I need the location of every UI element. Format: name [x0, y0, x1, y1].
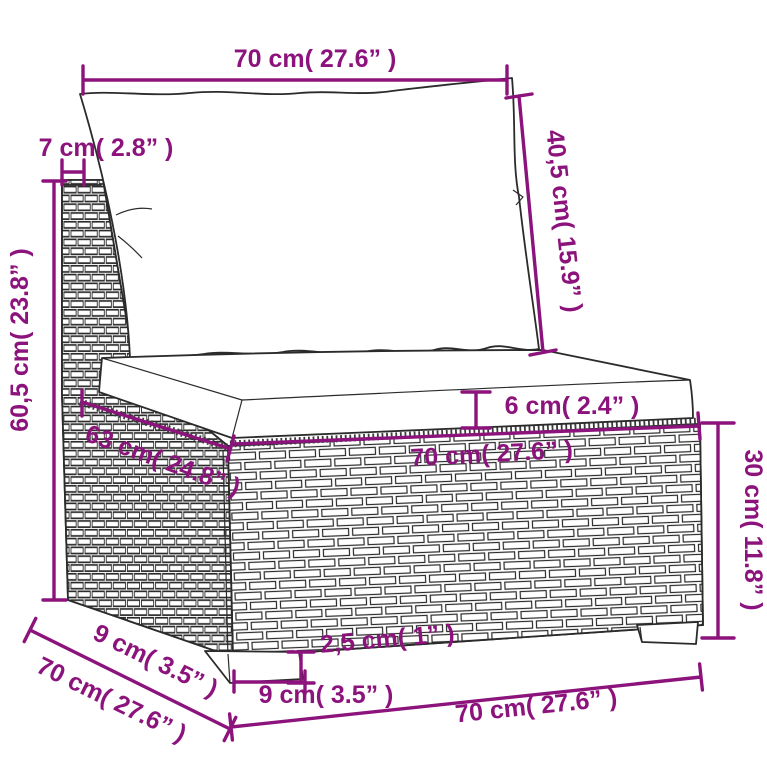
sofa-dimension-drawing: 70 cm( 27.6” ) 7 cm( 2.8” ) 40,5 cm( 15.… — [0, 0, 767, 767]
dim-back-total-height: 60,5 cm( 23.8” ) — [6, 181, 66, 600]
dim-base-height-line — [702, 423, 734, 638]
back-cushion — [80, 78, 539, 358]
dim-back-width-label: 70 cm( 27.6” ) — [234, 45, 397, 73]
dim-back-total-height-label: 60,5 cm( 23.8” ) — [6, 248, 34, 431]
dimension-diagram: 70 cm( 27.6” ) 7 cm( 2.8” ) 40,5 cm( 15.… — [0, 0, 767, 767]
dim-base-height-label: 30 cm( 11.8” ) — [739, 449, 767, 610]
dim-back-panel-thickness-label: 7 cm( 2.8” ) — [39, 134, 174, 162]
dim-foot-width-label: 9 cm( 3.5” ) — [259, 681, 394, 709]
dim-front-width-label: 70 cm( 27.6” ) — [454, 684, 619, 729]
dim-seat-cushion-thickness-label: 6 cm( 2.4” ) — [505, 392, 640, 420]
back-cushion-outline — [80, 78, 539, 358]
right-foot — [637, 622, 698, 644]
dim-base-height: 30 cm( 11.8” ) — [702, 423, 767, 638]
dim-back-cushion-height-label: 40,5 cm( 15.9” ) — [540, 128, 587, 313]
sofa-artwork — [62, 78, 703, 683]
